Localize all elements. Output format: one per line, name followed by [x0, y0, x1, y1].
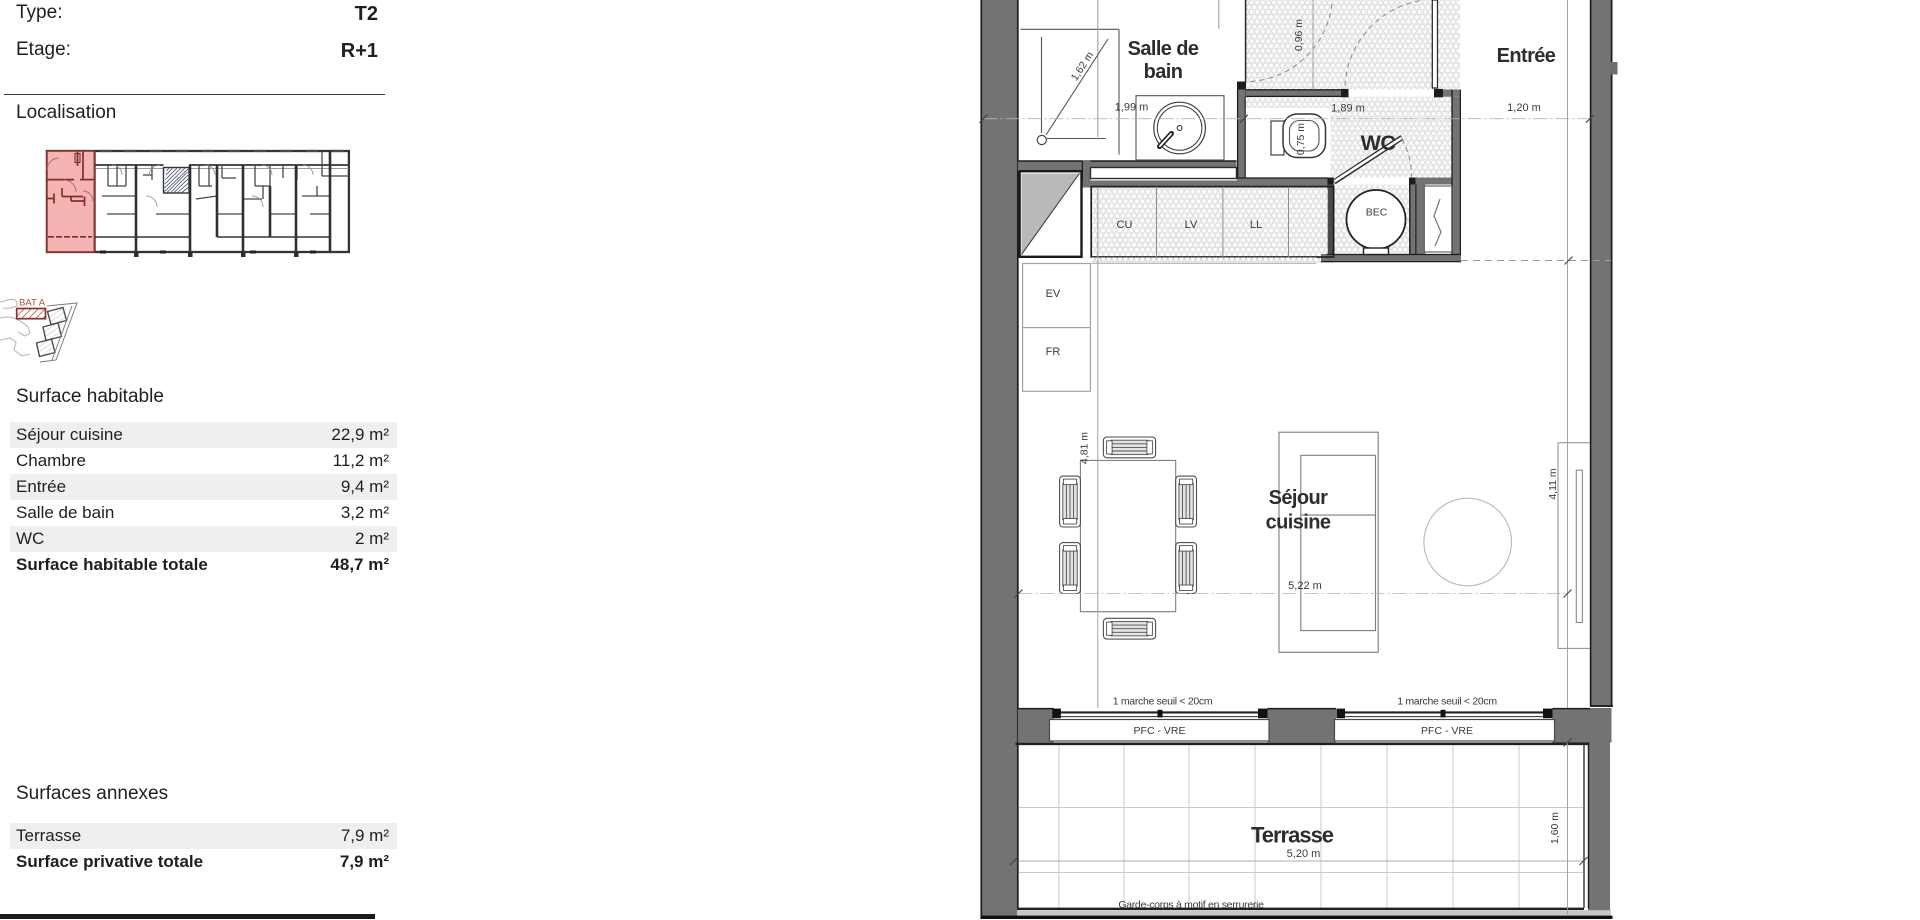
- svg-text:LV: LV: [1185, 219, 1198, 231]
- svg-text:4,11 m: 4,11 m: [1547, 468, 1559, 500]
- svg-text:1,60 m: 1,60 m: [1549, 812, 1561, 844]
- svg-text:PFC - VRE: PFC - VRE: [1134, 725, 1186, 737]
- svg-text:0,75 m: 0,75 m: [1295, 123, 1307, 155]
- svg-text:PFC - VRE: PFC - VRE: [1421, 725, 1473, 737]
- svg-text:Entrée: Entrée: [1497, 45, 1556, 67]
- svg-text:Salle de: Salle de: [1128, 38, 1199, 60]
- svg-text:bain: bain: [1144, 61, 1183, 83]
- svg-text:Terrasse: Terrasse: [1251, 823, 1334, 848]
- svg-text:1 marche seuil < 20cm: 1 marche seuil < 20cm: [1113, 696, 1213, 708]
- svg-text:1,20 m: 1,20 m: [1507, 102, 1541, 114]
- svg-text:BAT A: BAT A: [19, 298, 46, 309]
- svg-text:1,89 m: 1,89 m: [1331, 103, 1365, 115]
- svg-text:5,22 m: 5,22 m: [1288, 580, 1322, 592]
- svg-text:LL: LL: [1250, 219, 1262, 231]
- svg-text:1 marche seuil < 20cm: 1 marche seuil < 20cm: [1397, 696, 1497, 708]
- svg-text:FR: FR: [1046, 346, 1061, 358]
- svg-text:5,20 m: 5,20 m: [1287, 848, 1321, 860]
- svg-text:Garde-corps à motif en serrure: Garde-corps à motif en serrurerie: [1118, 899, 1264, 911]
- svg-text:WC: WC: [1361, 131, 1396, 155]
- svg-text:0,96 m: 0,96 m: [1293, 19, 1305, 51]
- svg-text:cuisine: cuisine: [1266, 512, 1331, 534]
- svg-text:4,81 m: 4,81 m: [1079, 432, 1091, 464]
- svg-text:EV: EV: [1046, 288, 1061, 300]
- svg-text:BEC: BEC: [1366, 207, 1388, 219]
- svg-text:Séjour: Séjour: [1269, 487, 1328, 509]
- svg-text:1,99 m: 1,99 m: [1115, 102, 1149, 114]
- svg-text:CU: CU: [1117, 219, 1133, 231]
